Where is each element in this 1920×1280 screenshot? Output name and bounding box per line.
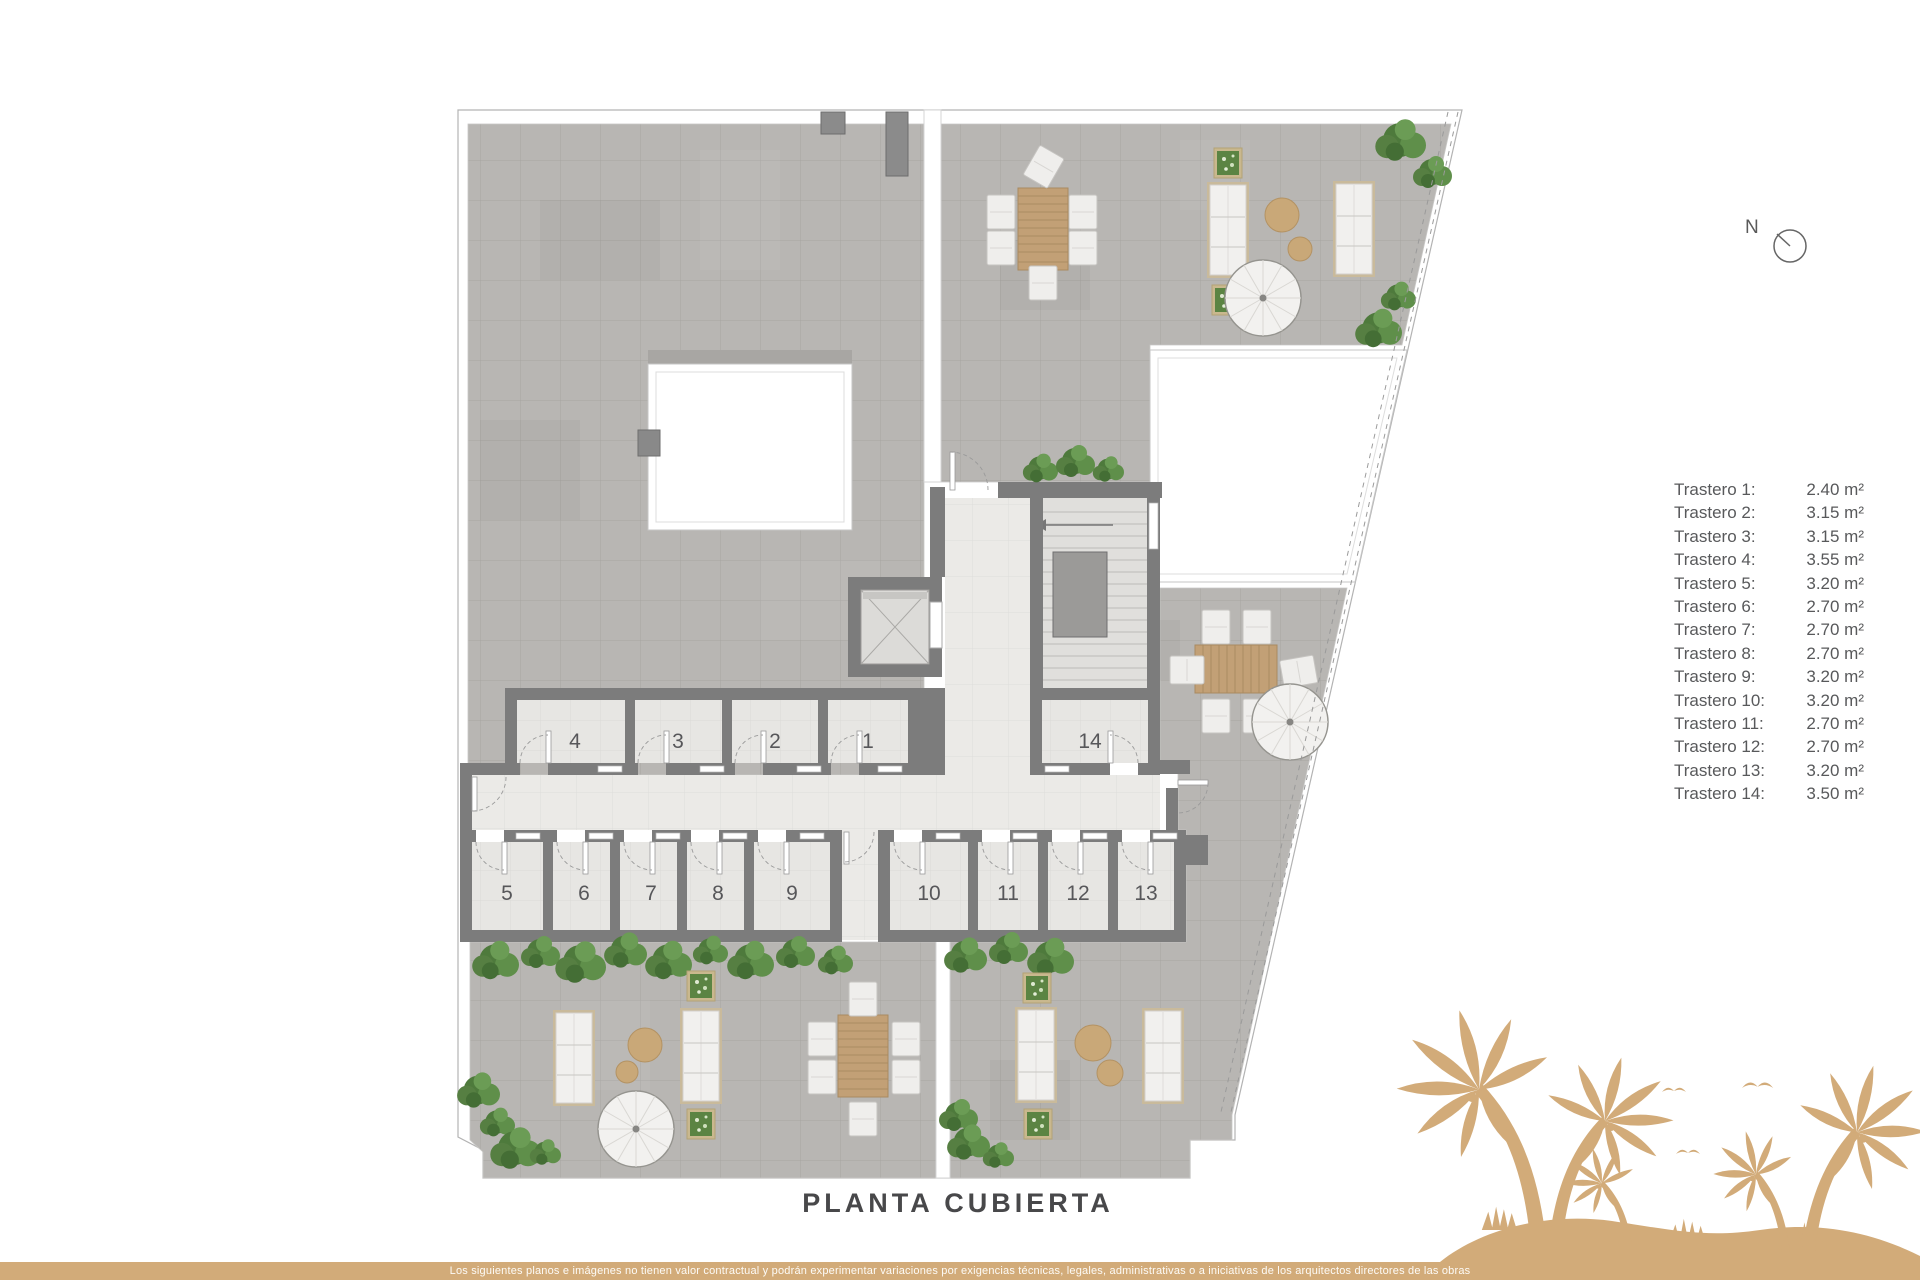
- parapet-divider-bottom: [936, 940, 950, 1178]
- legend-value: 3.15 m²: [1806, 501, 1864, 524]
- side-table: [616, 1061, 638, 1083]
- legend-label: Trastero 2:: [1674, 501, 1756, 524]
- legend-row: Trastero 5:3.20 m²: [1674, 572, 1864, 595]
- elevator-door: [930, 602, 942, 648]
- chimney: [821, 112, 845, 134]
- legend-value: 2.70 m²: [1806, 642, 1864, 665]
- room-label: 2: [769, 730, 781, 753]
- bird-icon: [1676, 1150, 1700, 1154]
- planter-box: [687, 971, 715, 1001]
- legend-row: Trastero 8:2.70 m²: [1674, 642, 1864, 665]
- legend-value: 3.20 m²: [1806, 572, 1864, 595]
- sofa: [1015, 1007, 1057, 1103]
- dining-table: [1018, 188, 1068, 270]
- legend-label: Trastero 13:: [1674, 759, 1765, 782]
- legend-label: Trastero 11:: [1674, 712, 1764, 735]
- legend-value: 3.50 m²: [1806, 782, 1864, 805]
- chair: [987, 195, 1015, 229]
- chair: [987, 231, 1015, 265]
- legend-row: Trastero 11:2.70 m²: [1674, 712, 1864, 735]
- bird-icon: [1742, 1082, 1773, 1088]
- void-right: [1150, 350, 1407, 582]
- legend-row: Trastero 1:2.40 m²: [1674, 478, 1864, 501]
- compass-north-label: N: [1745, 217, 1759, 239]
- planter-box: [1024, 1109, 1052, 1139]
- void-left: [648, 364, 852, 530]
- legend-row: Trastero 3:3.15 m²: [1674, 525, 1864, 548]
- legend-value: 3.55 m²: [1806, 548, 1864, 571]
- legend-row: Trastero 13:3.20 m²: [1674, 759, 1864, 782]
- room-label: 14: [1078, 730, 1102, 753]
- legend-row: Trastero 14:3.50 m²: [1674, 782, 1864, 805]
- legend-label: Trastero 6:: [1674, 595, 1756, 618]
- legend-value: 2.70 m²: [1806, 595, 1864, 618]
- disclaimer-bar: Los siguientes planos e imágenes no tien…: [0, 1262, 1920, 1280]
- room-label: 10: [917, 882, 940, 905]
- chair: [1202, 699, 1230, 733]
- page-title: PLANTA CUBIERTA: [658, 1188, 1258, 1219]
- chair: [892, 1060, 920, 1094]
- legend-value: 3.15 m²: [1806, 525, 1864, 548]
- sofa: [1207, 182, 1249, 278]
- bird-icon: [1662, 1088, 1686, 1092]
- chair: [849, 1102, 877, 1136]
- chimney: [886, 112, 908, 176]
- dining-table: [1195, 645, 1277, 693]
- chair: [1170, 656, 1204, 684]
- legend-label: Trastero 4:: [1674, 548, 1756, 571]
- palm-trees-decoration: [1396, 1009, 1920, 1262]
- room-label: 12: [1066, 882, 1089, 905]
- stair-void: [1053, 552, 1107, 637]
- palm-tree: [1799, 1065, 1920, 1252]
- chair: [1243, 610, 1271, 644]
- planter-box: [1023, 973, 1051, 1003]
- legend-label: Trastero 5:: [1674, 572, 1756, 595]
- room-label: 4: [569, 730, 581, 753]
- sofa: [553, 1010, 595, 1106]
- chair: [1202, 610, 1230, 644]
- parasol: [1225, 260, 1301, 336]
- chair: [808, 1022, 836, 1056]
- side-table: [1288, 237, 1312, 261]
- dining-table: [838, 1015, 888, 1097]
- side-table: [628, 1028, 662, 1062]
- legend-value: 2.70 m²: [1806, 712, 1864, 735]
- chair: [849, 982, 877, 1016]
- legend-label: Trastero 10:: [1674, 689, 1765, 712]
- room-label: 1: [862, 730, 874, 753]
- floor-plan-drawing: 1 2 3 4 5 6 7 8 9 10 11 12 13 14: [0, 0, 1920, 1280]
- storage-area-legend: Trastero 1:2.40 m² Trastero 2:3.15 m² Tr…: [1674, 478, 1864, 806]
- legend-row: Trastero 6:2.70 m²: [1674, 595, 1864, 618]
- chair: [1029, 266, 1057, 300]
- grass-tuft: [1668, 1219, 1706, 1244]
- chair: [1069, 195, 1097, 229]
- legend-value: 3.20 m²: [1806, 689, 1864, 712]
- chair: [892, 1022, 920, 1056]
- disclaimer-text: Los siguientes planos e imágenes no tien…: [450, 1265, 1471, 1277]
- palm-tree: [1396, 1009, 1548, 1232]
- sofa: [1142, 1008, 1184, 1104]
- legend-row: Trastero 2:3.15 m²: [1674, 501, 1864, 524]
- room-label: 13: [1134, 882, 1157, 905]
- legend-row: Trastero 7:2.70 m²: [1674, 618, 1864, 641]
- legend-label: Trastero 7:: [1674, 618, 1756, 641]
- floor-plan-page: 1 2 3 4 5 6 7 8 9 10 11 12 13 14: [0, 0, 1920, 1280]
- planter-box: [687, 1109, 715, 1139]
- parapet-divider-top: [924, 110, 941, 482]
- legend-label: Trastero 12:: [1674, 735, 1765, 758]
- parasol: [598, 1091, 674, 1167]
- legend-row: Trastero 10:3.20 m²: [1674, 689, 1864, 712]
- legend-row: Trastero 9:3.20 m²: [1674, 665, 1864, 688]
- chair: [808, 1060, 836, 1094]
- side-table: [1265, 198, 1299, 232]
- legend-label: Trastero 1:: [1674, 478, 1756, 501]
- room-label: 9: [786, 882, 798, 905]
- room-label: 6: [578, 882, 590, 905]
- grass-tuft: [1482, 1207, 1517, 1230]
- legend-label: Trastero 9:: [1674, 665, 1756, 688]
- room-label: 11: [997, 882, 1019, 905]
- sofa: [680, 1008, 722, 1104]
- legend-value: 3.20 m²: [1806, 665, 1864, 688]
- sofa: [1333, 181, 1375, 277]
- legend-value: 2.70 m²: [1806, 618, 1864, 641]
- legend-value: 2.70 m²: [1806, 735, 1864, 758]
- parasol: [1252, 684, 1328, 760]
- legend-label: Trastero 3:: [1674, 525, 1756, 548]
- side-table: [1075, 1025, 1111, 1061]
- legend-row: Trastero 4:3.55 m²: [1674, 548, 1864, 571]
- legend-value: 3.20 m²: [1806, 759, 1864, 782]
- legend-row: Trastero 12:2.70 m²: [1674, 735, 1864, 758]
- room-label: 8: [712, 882, 724, 905]
- rooflight-box: [638, 430, 660, 456]
- north-compass-icon: N: [1745, 215, 1815, 265]
- chair: [1280, 655, 1318, 688]
- legend-label: Trastero 8:: [1674, 642, 1756, 665]
- chair: [1069, 231, 1097, 265]
- room-label: 3: [672, 730, 684, 753]
- legend-value: 2.40 m²: [1806, 478, 1864, 501]
- palm-tree: [1547, 1057, 1674, 1235]
- side-table: [1097, 1060, 1123, 1086]
- planter-box: [1214, 148, 1242, 178]
- room-label: 7: [645, 882, 657, 905]
- room-label: 5: [501, 882, 513, 905]
- legend-label: Trastero 14:: [1674, 782, 1765, 805]
